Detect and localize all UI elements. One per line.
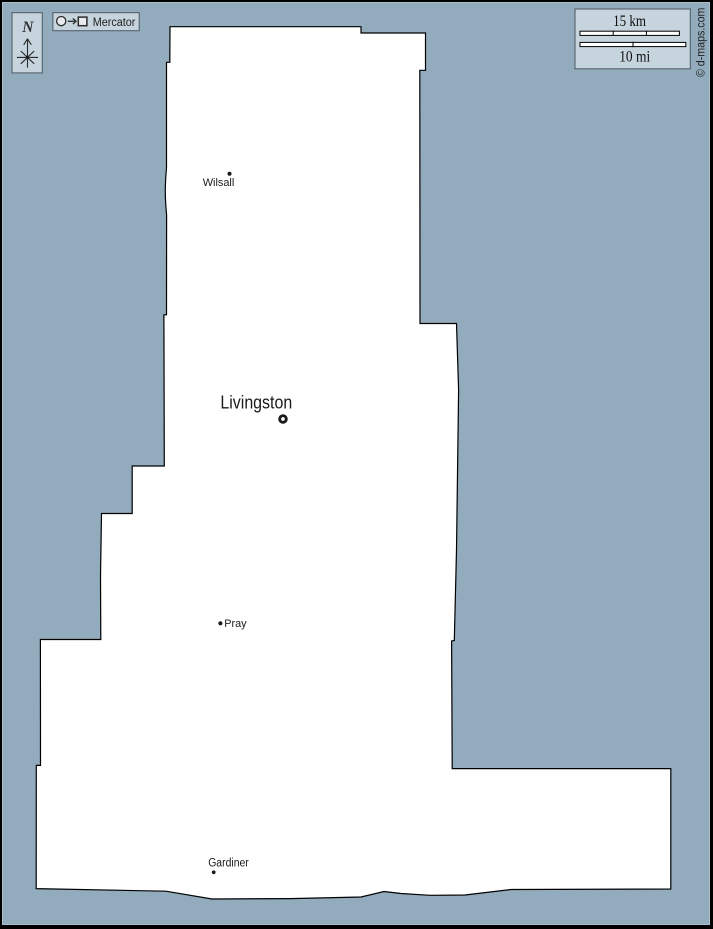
svg-text:10 mi: 10 mi — [619, 48, 650, 65]
svg-text:Mercator: Mercator — [93, 17, 136, 29]
svg-text:© d-maps.com: © d-maps.com — [694, 8, 708, 77]
svg-text:Wilsall: Wilsall — [203, 177, 235, 189]
svg-text:Gardiner: Gardiner — [208, 857, 249, 869]
svg-text:15 km: 15 km — [613, 13, 646, 30]
svg-text:Livingston: Livingston — [220, 393, 292, 413]
svg-text:N: N — [21, 19, 34, 36]
svg-text:Pray: Pray — [224, 618, 247, 630]
